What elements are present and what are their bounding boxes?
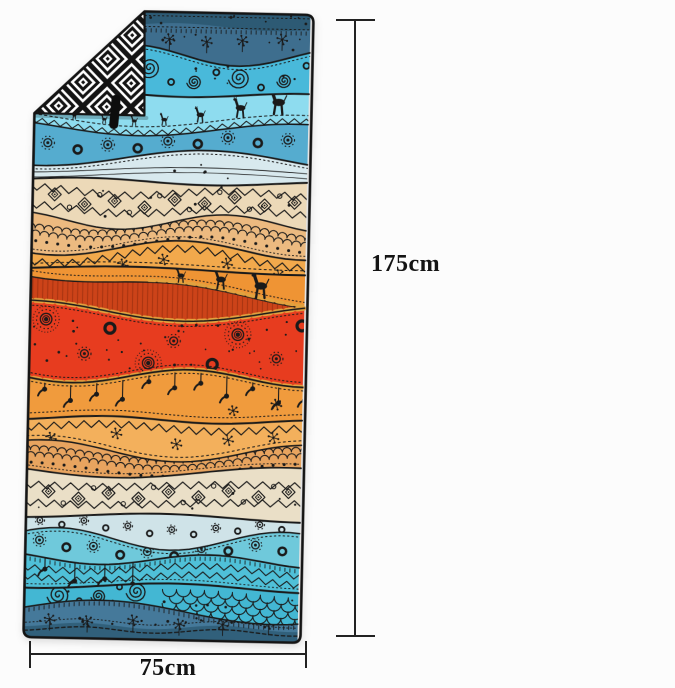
height-dimension-label: 175cm <box>371 251 440 278</box>
towel-image <box>23 9 313 643</box>
height-dimension-cap-top <box>336 19 375 21</box>
height-dimension-line <box>354 20 356 636</box>
width-dimension-label: 75cm <box>29 655 307 682</box>
towel-graphic <box>23 9 313 643</box>
product-photo-stage: 175cm 75cm <box>0 0 675 688</box>
height-dimension-cap-bottom <box>336 635 375 637</box>
towel-front <box>13 9 328 649</box>
